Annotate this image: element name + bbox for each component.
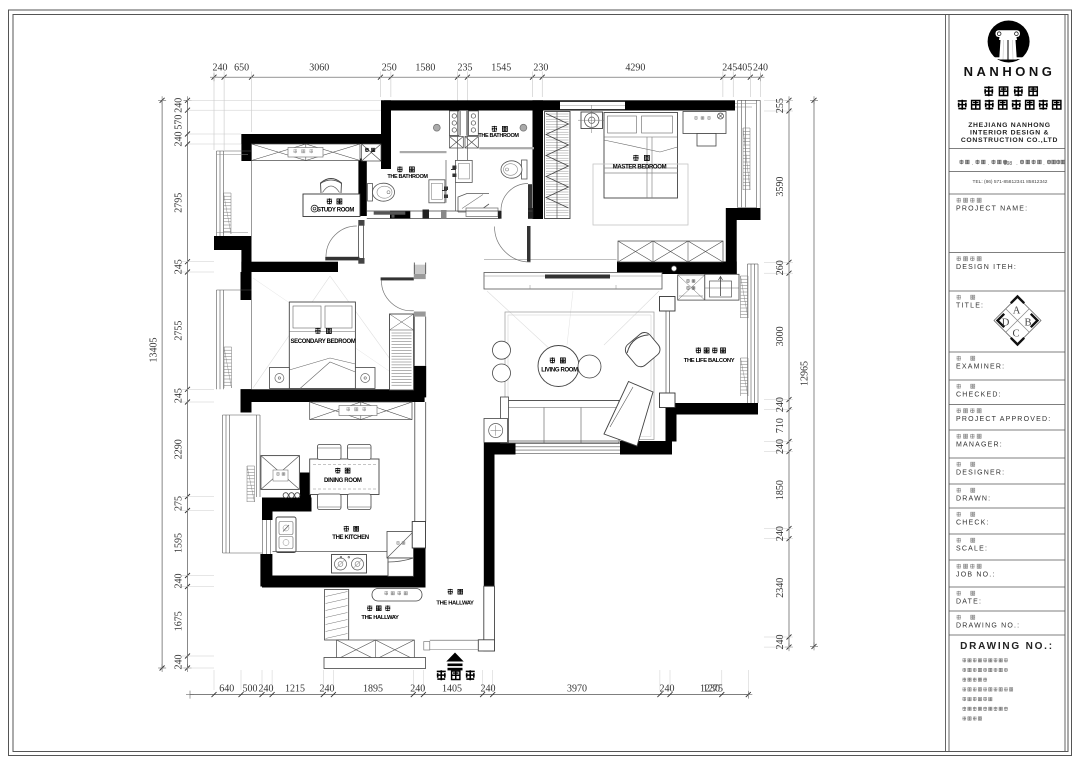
svg-text:MANAGER:: MANAGER:: [956, 442, 1003, 449]
svg-text:3970: 3970: [567, 684, 587, 695]
svg-text:DESIGNER:: DESIGNER:: [956, 470, 1005, 477]
svg-text:260: 260: [775, 260, 786, 275]
svg-text:250: 250: [382, 63, 397, 74]
svg-text:SECONDARY BEDROOM: SECONDARY BEDROOM: [290, 339, 355, 345]
svg-text:240: 240: [213, 63, 228, 74]
svg-text:PROJECT NAME:: PROJECT NAME:: [956, 206, 1028, 213]
svg-text:A: A: [1013, 306, 1021, 317]
svg-text:THE HALLWAY: THE HALLWAY: [361, 615, 399, 621]
svg-text:275: 275: [174, 496, 185, 511]
svg-text:1850: 1850: [775, 480, 786, 500]
svg-text:1895: 1895: [363, 684, 383, 695]
svg-text:PROJECT APPROVED:: PROJECT APPROVED:: [956, 416, 1051, 423]
svg-text:THE KITCHEN: THE KITCHEN: [332, 535, 369, 541]
svg-text:1595: 1595: [174, 533, 185, 553]
svg-text:DRAWING NO.:: DRAWING NO.:: [956, 623, 1020, 630]
svg-text:.: .: [1016, 161, 1017, 167]
svg-text:3590: 3590: [775, 177, 786, 197]
svg-text:STUDY ROOM: STUDY ROOM: [317, 208, 354, 214]
svg-text:THE LIFE BALCONY: THE LIFE BALCONY: [684, 358, 735, 364]
svg-text:598: 598: [1004, 161, 1013, 167]
svg-text:DESIGN ITEH:: DESIGN ITEH:: [956, 264, 1017, 271]
svg-text:.: .: [1043, 161, 1044, 167]
svg-text:4290: 4290: [625, 63, 645, 74]
svg-text:240: 240: [174, 98, 185, 113]
svg-text:640: 640: [219, 684, 234, 695]
svg-text:235: 235: [458, 63, 473, 74]
svg-text:240: 240: [753, 63, 768, 74]
svg-text:240: 240: [775, 526, 786, 541]
svg-text:3000: 3000: [775, 326, 786, 346]
svg-text:1580: 1580: [415, 63, 435, 74]
svg-text:CHECKED:: CHECKED:: [956, 392, 1002, 399]
svg-text:405: 405: [737, 63, 752, 74]
svg-text:240: 240: [775, 635, 786, 650]
svg-text:500: 500: [243, 684, 258, 695]
svg-text:1405: 1405: [442, 684, 462, 695]
svg-text:240: 240: [320, 684, 335, 695]
svg-text:3060: 3060: [309, 63, 329, 74]
svg-text:240: 240: [481, 684, 496, 695]
svg-text:THE HALLWAY: THE HALLWAY: [436, 601, 474, 607]
svg-text:240: 240: [174, 574, 185, 589]
svg-text:2755: 2755: [174, 321, 185, 341]
svg-text:B: B: [1024, 318, 1031, 329]
svg-text:1215: 1215: [285, 684, 305, 695]
svg-text:ZHEJIANG NANHONG: ZHEJIANG NANHONG: [968, 122, 1051, 129]
svg-text:1675: 1675: [174, 611, 185, 631]
svg-text:240: 240: [775, 397, 786, 412]
svg-text:DINING ROOM: DINING ROOM: [324, 478, 362, 484]
svg-text:12965: 12965: [800, 361, 811, 386]
svg-text:255: 255: [775, 98, 786, 113]
svg-text:.: .: [972, 161, 973, 167]
svg-text:THE BATHROOM: THE BATHROOM: [478, 133, 519, 139]
svg-text:INTERIOR DESIGN &: INTERIOR DESIGN &: [970, 130, 1049, 137]
svg-text:LIVING ROOM: LIVING ROOM: [541, 368, 578, 374]
svg-text:240: 240: [259, 684, 274, 695]
svg-text:DRAWN:: DRAWN:: [956, 496, 991, 503]
svg-text:570: 570: [174, 115, 185, 130]
svg-text:2340: 2340: [775, 578, 786, 598]
svg-text:THE BATHROOM: THE BATHROOM: [387, 174, 428, 180]
svg-text:245: 245: [174, 259, 185, 274]
svg-text:1275: 1275: [703, 684, 723, 695]
svg-text:240: 240: [775, 439, 786, 454]
svg-text:TITLE:: TITLE:: [956, 303, 984, 310]
svg-text:13405: 13405: [149, 338, 160, 363]
svg-text:245: 245: [174, 388, 185, 403]
svg-text:TEL: (86) 571-85812341 85: TEL: (86) 571-85812341 85812342: [973, 179, 1048, 185]
svg-text:DRAWING NO.:: DRAWING NO.:: [960, 641, 1054, 652]
svg-text:C: C: [1012, 329, 1019, 340]
svg-text:2290: 2290: [174, 439, 185, 459]
svg-text:230: 230: [533, 63, 548, 74]
svg-text:CONSTRUCTION CO.,LTD: CONSTRUCTION CO.,LTD: [961, 137, 1058, 144]
svg-text:650: 650: [234, 63, 249, 74]
svg-text:240: 240: [660, 684, 675, 695]
svg-text:D: D: [1002, 318, 1010, 329]
svg-text:1545: 1545: [491, 63, 511, 74]
svg-text:710: 710: [775, 418, 786, 433]
svg-text:MASTER BEDROOM: MASTER BEDROOM: [613, 165, 667, 171]
svg-text:NANHONG: NANHONG: [964, 64, 1056, 79]
svg-text:CHECK:: CHECK:: [956, 520, 990, 527]
svg-text:JOB NO.:: JOB NO.:: [956, 572, 996, 579]
svg-text:DATE:: DATE:: [956, 599, 982, 606]
svg-text:.: .: [988, 161, 989, 167]
svg-text:SCALE:: SCALE:: [956, 546, 988, 553]
svg-text:240: 240: [410, 684, 425, 695]
svg-text:240: 240: [174, 655, 185, 670]
svg-text:240: 240: [174, 132, 185, 147]
svg-text:2795: 2795: [174, 193, 185, 213]
svg-text:245: 245: [722, 63, 737, 74]
svg-text:EXAMINER:: EXAMINER:: [956, 364, 1005, 371]
